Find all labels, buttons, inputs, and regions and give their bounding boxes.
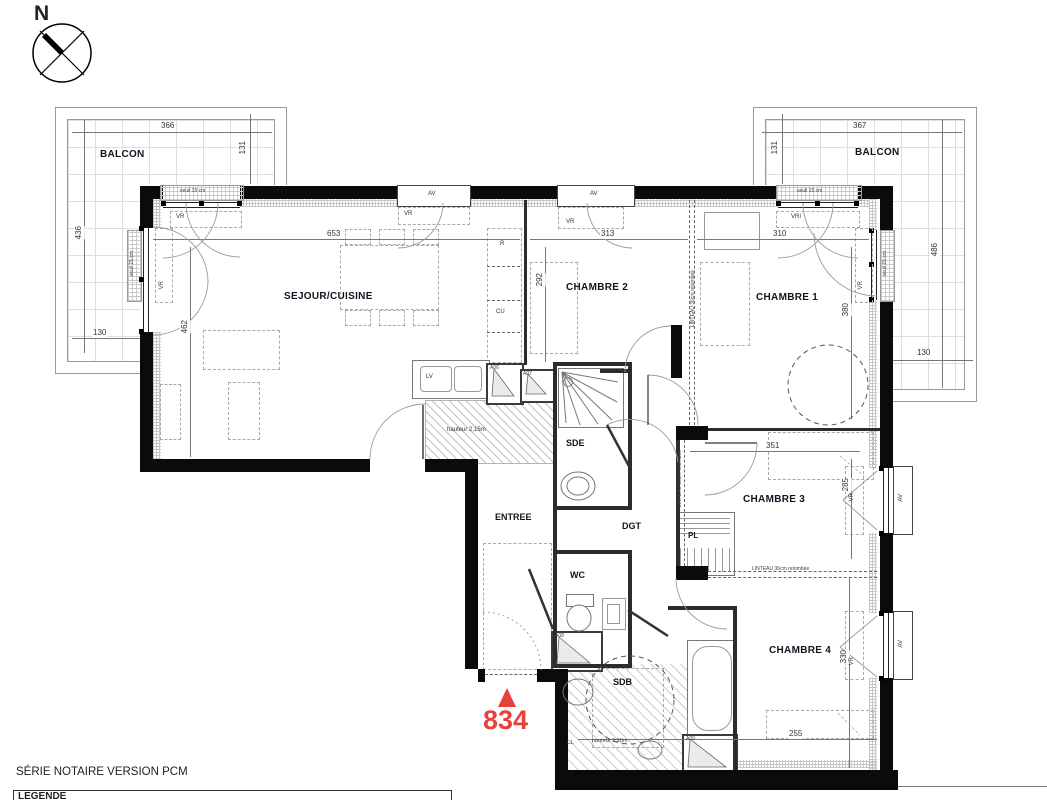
dim-sejour-depth: 462: [180, 320, 191, 333]
balcony-right-label: BALCON: [855, 147, 900, 158]
seuil-label: seuil 15 cm: [130, 251, 136, 276]
dim-chambre4-width: 255: [788, 730, 803, 739]
room-label-placard: PL: [688, 532, 698, 541]
legend-title: LEGENDE: [18, 791, 66, 800]
kitchen-label-lv: LV: [426, 374, 433, 381]
dim-chambre1-width: 310: [772, 230, 787, 239]
room-label-chambre4: CHAMBRE 4: [769, 645, 831, 656]
shutter-label-vri: VRI: [791, 214, 801, 221]
dim-chambre3-width: 351: [765, 442, 780, 451]
dim-balcony-left-bottom: 130: [92, 329, 107, 338]
fixture-ref-a07: A07: [523, 372, 532, 378]
compass-icon: [33, 24, 91, 82]
sanitary-fixtures: [561, 372, 662, 759]
dim-chambre1-depth: 380: [841, 303, 852, 316]
door-arcs: [153, 203, 877, 677]
fixture-ref-a08: A08: [555, 634, 564, 640]
window-label-av: AV: [428, 191, 436, 198]
linteau-label: LINTEAU 36cm retombée: [691, 270, 697, 327]
window-label-av: AV: [898, 640, 905, 648]
floor-plan: N BALCON BALCON 366 131 436 130 367 131 …: [0, 0, 1047, 800]
seuil-label: seuil 15 cm: [883, 251, 889, 276]
legend-box: [13, 790, 452, 800]
dim-chambre3-depth: 285: [841, 478, 852, 491]
room-label-chambre1: CHAMBRE 1: [756, 292, 818, 303]
plan-linework: [0, 0, 1047, 800]
room-label-wc: WC: [570, 571, 585, 581]
room-label-sde: SDE: [566, 439, 585, 449]
ceiling-height-sdb: hauteur 2,20m: [592, 738, 627, 744]
kitchen-label-r: R: [500, 241, 504, 248]
dim-balcony-right-bottom: 130: [916, 349, 931, 358]
window-label-av: AV: [590, 191, 598, 198]
dim-balcony-left-depth: 436: [74, 226, 85, 239]
shutter-label-vr: VR: [159, 281, 166, 289]
linteau-label: LINTEAU 36cm retombée: [752, 567, 809, 573]
shutter-label-vr: VR: [858, 281, 865, 289]
kitchen-label-cu: CU: [496, 309, 505, 316]
dim-sejour-width: 653: [326, 230, 341, 239]
room-label-sdb: SDB: [613, 678, 632, 688]
shutter-label-vr: VR: [849, 657, 856, 665]
ceiling-height-kitchen: hauteur 2,15m: [447, 427, 486, 434]
fixture-ref-a06: A06: [490, 366, 499, 372]
linteau-label: LINTEAU 36cm retombée: [678, 450, 684, 507]
window-label-av: AV: [898, 494, 905, 502]
shutter-label-vr: VR: [566, 219, 574, 226]
dim-balcony-right-side: 131: [770, 141, 781, 154]
room-label-chambre3: CHAMBRE 3: [743, 494, 805, 505]
fixture-ref-a09: A09: [686, 737, 695, 743]
dim-chambre2-depth: 292: [535, 273, 546, 286]
dim-balcony-left-side: 131: [238, 141, 249, 154]
dim-balcony-right-width: 367: [852, 122, 867, 131]
room-label-chambre2: CHAMBRE 2: [566, 282, 628, 293]
shutter-label-vr: VR: [849, 493, 856, 501]
shutter-label-vr: VR: [176, 214, 184, 221]
dim-balcony-left-width: 366: [160, 122, 175, 131]
dim-balcony-right-depth: 486: [930, 243, 941, 256]
balcony-left-label: BALCON: [100, 149, 145, 160]
room-label-dgt: DGT: [622, 522, 641, 532]
door-leaves: [423, 375, 757, 636]
seuil-label: seuil 15 cm: [180, 189, 205, 195]
compass-north-label: N: [34, 2, 49, 25]
footer-series-title: SÉRIE NOTAIRE VERSION PCM: [16, 766, 188, 779]
seuil-label: seuil 15 cm: [797, 189, 822, 195]
room-label-entree: ENTREE: [495, 513, 532, 523]
dim-chambre2-width: 313: [600, 230, 615, 239]
shutter-label-vr: VR: [404, 211, 412, 218]
lot-number: 834: [483, 706, 528, 736]
sdb-label-ll: LL: [567, 740, 574, 747]
room-label-sejour: SEJOUR/CUISINE: [284, 291, 373, 302]
